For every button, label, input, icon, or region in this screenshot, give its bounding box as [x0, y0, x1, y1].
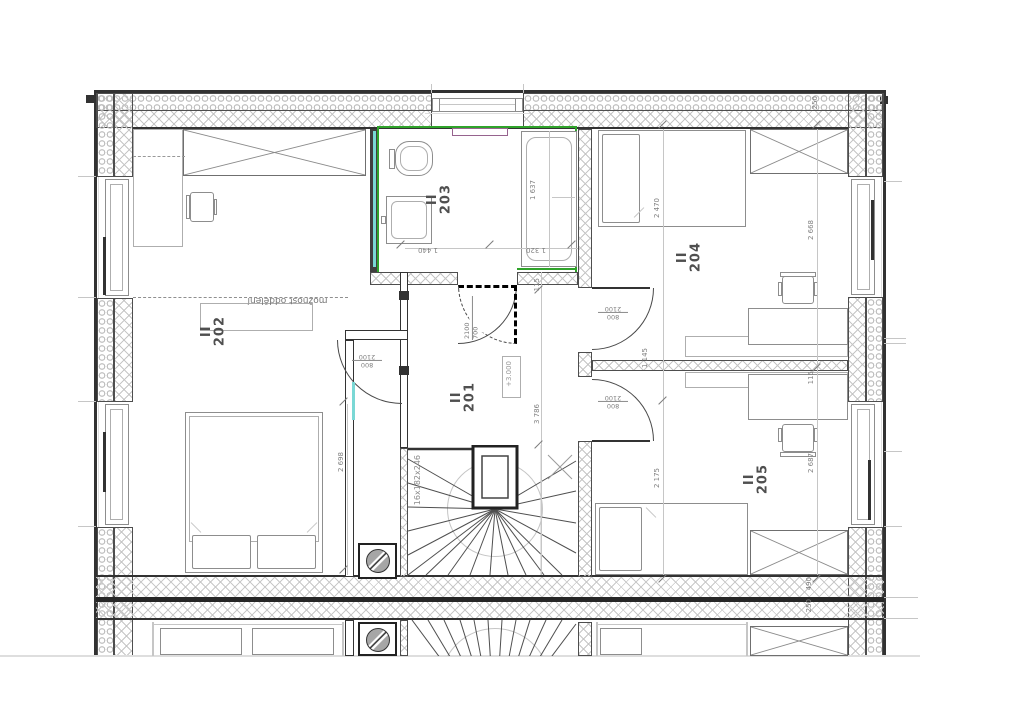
bed-202-mattress	[189, 416, 319, 542]
stair-lower-fan	[408, 620, 578, 656]
chair-202-arm	[214, 199, 217, 215]
drain-symbol-upper-icon	[366, 549, 390, 573]
outer-wall-line-right	[883, 90, 886, 656]
door-204-size: 800 2100	[598, 304, 628, 320]
wall-left-core-1	[114, 93, 133, 177]
wall-top-insulation-right	[523, 93, 884, 111]
dim-205-depth: 2 175	[654, 468, 661, 488]
bathroom-south-wall-right	[517, 272, 578, 285]
lower-hall-east-wall	[578, 622, 592, 656]
witness-left-3	[78, 401, 96, 402]
wardrobe-204	[750, 129, 848, 174]
cabinet-202-divider	[133, 156, 185, 157]
wardrobe-202	[183, 129, 366, 176]
witness-left-1	[78, 176, 96, 177]
hall-east-wall-lower	[578, 441, 592, 577]
lower-room202-wall	[345, 620, 354, 656]
window-north-mullion	[432, 104, 523, 105]
bathtub-dim-arrow	[552, 197, 575, 198]
bathroom-south-wall-left	[370, 272, 458, 285]
window-north-cap-right	[515, 98, 523, 112]
door-205-swing	[592, 379, 654, 441]
room-204-label: II 204	[676, 242, 703, 272]
window-north-cap-left	[432, 98, 440, 112]
dimline-hall	[541, 272, 542, 575]
bed-204-pillow	[602, 134, 640, 223]
dim-hall-depth: 3 786	[534, 404, 541, 424]
wall-right-core-1	[848, 93, 866, 177]
witness-right-5	[884, 526, 902, 527]
hall-east-wall-upper	[578, 129, 592, 288]
witness-right-4	[884, 451, 902, 452]
window-west2-glass	[110, 409, 123, 520]
chair-204-back	[780, 272, 816, 277]
lower-bed-right-head	[596, 624, 747, 625]
toilet-203-inner	[400, 146, 428, 171]
room-203-label: II 203	[426, 184, 453, 214]
wall-top-insulation-left	[96, 93, 432, 111]
lower-bed-left-edge2	[342, 622, 344, 656]
window-west1-outer	[98, 177, 99, 298]
sink-203-basin	[391, 201, 427, 239]
wall-right-insulation-1	[866, 93, 883, 177]
window-west1-sash	[103, 237, 106, 295]
floor-band-lower	[96, 602, 884, 618]
dim-115-205: 115	[808, 371, 815, 384]
wall-right-core-2	[848, 297, 866, 402]
dimline-204-205-right	[817, 129, 818, 575]
dim-tub: 1 637	[530, 180, 537, 200]
desk-204	[748, 308, 848, 345]
door-202-size: 800 2100	[352, 352, 382, 368]
door-stub-202	[345, 330, 408, 340]
lower-bed-right-edge1	[596, 622, 598, 656]
window-east1-outer	[881, 177, 882, 297]
dim-250-party: 250	[806, 599, 813, 612]
drain-symbol-lower-icon	[366, 628, 390, 652]
bed-202-pillow-1	[192, 535, 251, 569]
floor-plan-canvas: možnost oddělení 800 2100 2100 700 +3.00…	[0, 0, 1024, 724]
room-202-label: II 202	[200, 316, 227, 346]
wall-left-insulation-2	[97, 298, 114, 402]
wall-right-insulation-2	[866, 297, 883, 402]
toilet-203-tank	[389, 149, 395, 169]
witness-right-7	[884, 618, 918, 619]
chair-204	[782, 276, 814, 304]
lower-bed-left-edge1	[152, 622, 154, 656]
dim-204-width: 2 668	[808, 220, 815, 240]
window-east1-glass	[857, 184, 870, 290]
lower-wardrobe	[750, 626, 848, 656]
wall-left-insulation-1	[97, 93, 114, 177]
lower-bed-right-edge2	[746, 622, 748, 656]
witness-right-2	[884, 338, 906, 339]
window-east2-outer	[881, 402, 882, 527]
lower-bed-right-pillow	[600, 628, 642, 655]
witness-left-4	[78, 526, 96, 527]
stair-fan	[400, 445, 578, 577]
desk-205	[748, 374, 848, 420]
dim-490-party: 490	[806, 577, 813, 590]
stair-note: 16x182x246	[414, 455, 422, 505]
chair-202	[190, 192, 214, 222]
witness-top-2	[523, 84, 524, 93]
window-west2-sash	[103, 432, 106, 492]
window-west1-glass	[110, 184, 123, 291]
witness-top-1	[431, 84, 432, 93]
wall-left-core-2	[114, 298, 133, 402]
chair-205	[782, 424, 814, 452]
dim-1145: 1 145	[642, 348, 649, 368]
window-north	[432, 98, 523, 112]
chair-204-arm-l	[778, 282, 782, 296]
chair-202-back	[186, 195, 190, 219]
bathroom-highlight-green-bottom	[517, 268, 577, 270]
room-201-label: II 201	[450, 382, 477, 412]
door-205-size: 800 2100	[598, 393, 628, 409]
wardrobe-205	[750, 530, 848, 575]
level-mark: +3.000	[506, 361, 513, 387]
partition-204-205	[592, 360, 848, 371]
dimline-202	[347, 404, 348, 575]
witness-right-3	[884, 343, 906, 344]
cabinet-202	[133, 129, 183, 247]
window-west2-outer	[98, 402, 99, 527]
dim-115-hall: 115	[534, 278, 541, 291]
bed-202-pillow-2	[257, 535, 316, 569]
dim-250-top: 250	[812, 96, 819, 109]
dim-205-width: 2 687	[808, 453, 815, 473]
witness-right-1	[884, 181, 902, 182]
wall-cap-1	[399, 291, 409, 300]
lower-bed-left-head	[152, 624, 343, 625]
dim-bath-right: 1 320	[518, 246, 554, 253]
dim-204-depth: 2 470	[654, 198, 661, 218]
window-north-sill	[425, 113, 530, 114]
bathroom-west-accent	[373, 131, 376, 267]
floor-band-upper	[96, 577, 884, 597]
sink-203-tap	[381, 216, 386, 224]
wall-top-core-right	[523, 110, 884, 128]
door-202-accent	[352, 382, 355, 420]
lower-bed-left-pillow2	[252, 628, 334, 655]
hall-east-wall-mid	[578, 352, 592, 377]
witness-right-6	[884, 597, 918, 598]
chair-205-arm-l	[778, 428, 782, 442]
witness-left-2	[78, 297, 96, 298]
lower-stair-west-wall	[400, 620, 408, 656]
window-east2-sash	[868, 460, 871, 520]
separation-note: možnost oddělení	[235, 295, 340, 304]
dimline-204-205-left	[663, 129, 664, 575]
door-203-size: 2100 700	[464, 296, 480, 340]
lower-bed-left-pillow1	[160, 628, 242, 655]
dim-bath-left: 1 440	[410, 246, 446, 253]
dim-202-width: 2 698	[338, 452, 345, 472]
room-205-label: II 205	[743, 464, 770, 494]
window-east1-sash	[871, 200, 874, 260]
bed-205-pillow	[599, 507, 642, 571]
corner-marker-left-icon	[86, 95, 94, 103]
